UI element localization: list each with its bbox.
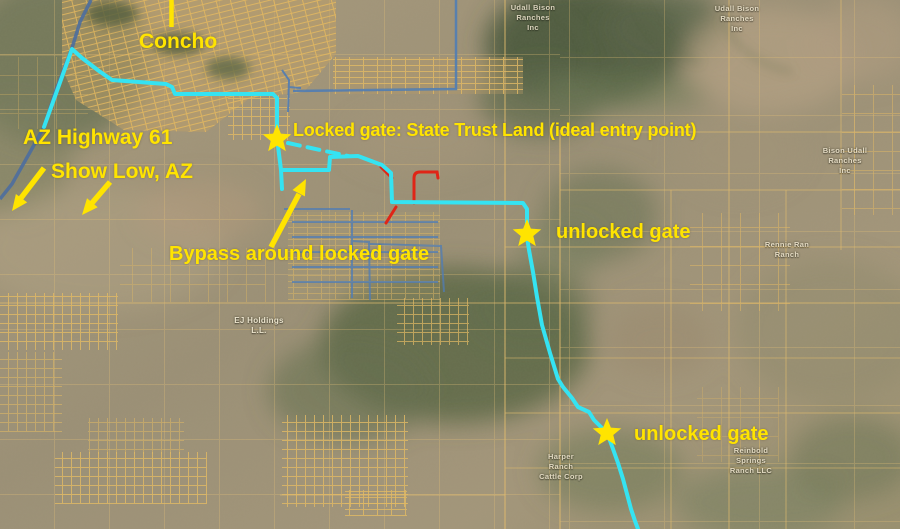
owner-line: Bison Udall bbox=[823, 146, 868, 156]
owner-line: Cattle Corp bbox=[539, 472, 583, 482]
parcel-owner-label: Reinbold Springs Ranch LLC bbox=[730, 446, 772, 475]
label-unlocked-gate-1: unlocked gate bbox=[556, 221, 690, 244]
owner-line: Inc bbox=[511, 23, 556, 33]
owner-line: Springs bbox=[730, 456, 772, 466]
label-unlocked-gate-2: unlocked gate bbox=[634, 423, 768, 446]
owner-line: Harper bbox=[539, 452, 583, 462]
parcel-owner-label: EJ Holdings L.L. bbox=[234, 316, 284, 337]
owner-line: Ranches bbox=[823, 156, 868, 166]
label-az-highway-61: AZ Highway 61 bbox=[23, 126, 172, 150]
owner-line: Ranch LLC bbox=[730, 466, 772, 476]
label-bypass: Bypass around locked gate bbox=[169, 243, 429, 266]
owner-line: L.L. bbox=[234, 326, 284, 336]
owner-line: EJ Holdings bbox=[234, 316, 284, 326]
owner-line: Rennie Ran bbox=[765, 240, 809, 250]
owner-line: Inc bbox=[823, 166, 868, 176]
label-concho: Concho bbox=[139, 30, 217, 54]
parcel-owner-label: Rennie Ran Ranch bbox=[765, 240, 809, 260]
parcel-owner-label: Udall Bison Ranches Inc bbox=[715, 4, 760, 33]
parcel-owner-label: Bison Udall Ranches Inc bbox=[823, 146, 868, 175]
owner-line: Ranches bbox=[715, 14, 760, 24]
label-locked-gate: Locked gate: State Trust Land (ideal ent… bbox=[293, 120, 696, 141]
parcel-owner-label: Udall Bison Ranches Inc bbox=[511, 3, 556, 32]
owner-line: Ranches bbox=[511, 13, 556, 23]
owner-line: Inc bbox=[715, 24, 760, 34]
owner-line: Udall Bison bbox=[715, 4, 760, 14]
parcel-owner-label: Harper Ranch Cattle Corp bbox=[539, 452, 583, 481]
owner-line: Udall Bison bbox=[511, 3, 556, 13]
owner-line: Reinbold bbox=[730, 446, 772, 456]
owner-line: Ranch bbox=[765, 250, 809, 260]
owner-line: Ranch bbox=[539, 462, 583, 472]
satellite-map: Concho AZ Highway 61 Show Low, AZ Locked… bbox=[0, 0, 900, 529]
label-show-low: Show Low, AZ bbox=[51, 160, 193, 184]
